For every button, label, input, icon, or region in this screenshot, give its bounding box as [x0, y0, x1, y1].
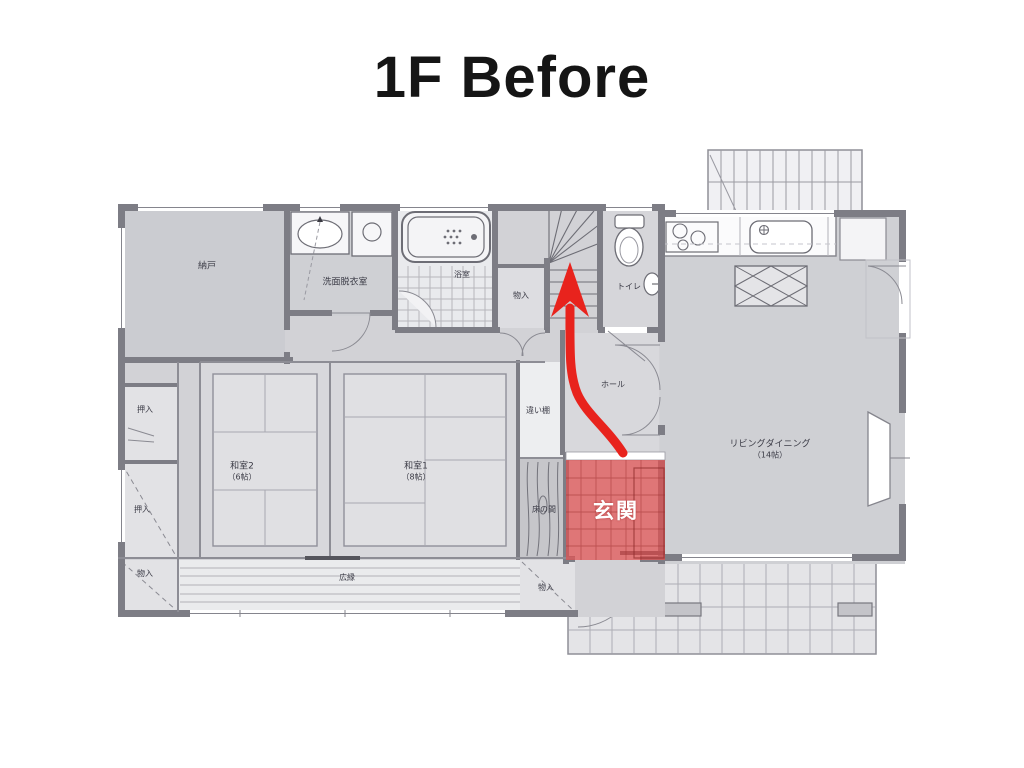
tatami-washitsu2: [213, 374, 317, 546]
room-label-washitsu1: 和室1（8帖）: [401, 461, 430, 482]
room-label-senmen: 洗面脱衣室: [322, 277, 367, 288]
deck-area: [708, 150, 862, 213]
room-label-oshiire-upper: 押入: [137, 405, 153, 415]
room-label-living: リビングダイニング（14帖）: [729, 439, 810, 460]
room-label-bath: 浴室: [454, 270, 470, 280]
washing-machine: [352, 212, 392, 256]
room-label-stairs-storage: 物入: [513, 291, 529, 301]
room-label-monoire-right: 物入: [538, 583, 554, 593]
room-label-hiroen: 広縁: [339, 573, 355, 583]
floor-plan: 納戸 洗面脱衣室 浴室 物入 トイレ リビングダイニング（14帖） 和室2（6帖…: [0, 0, 1024, 768]
floor-plan-drawing: [0, 0, 1024, 768]
room-label-chigaidana: 違い棚: [526, 406, 550, 416]
room-label-hall: ホール: [601, 380, 625, 390]
kitchen-counter: [663, 216, 886, 260]
room-label-tokonoma: 床の間: [532, 505, 556, 515]
room-label-toilet: トイレ: [617, 282, 641, 292]
screenshot: 1F Before: [0, 0, 1024, 768]
dining-table: [735, 266, 807, 306]
room-label-genkan: 玄関: [593, 498, 639, 524]
room-label-washitsu2: 和室2（6帖）: [227, 461, 256, 482]
tatami-washitsu1: [344, 374, 506, 546]
room-label-nando: 納戸: [198, 261, 216, 272]
room-label-monoire-left: 物入: [137, 569, 153, 579]
room-label-oshiire-lower: 押入: [134, 505, 150, 515]
